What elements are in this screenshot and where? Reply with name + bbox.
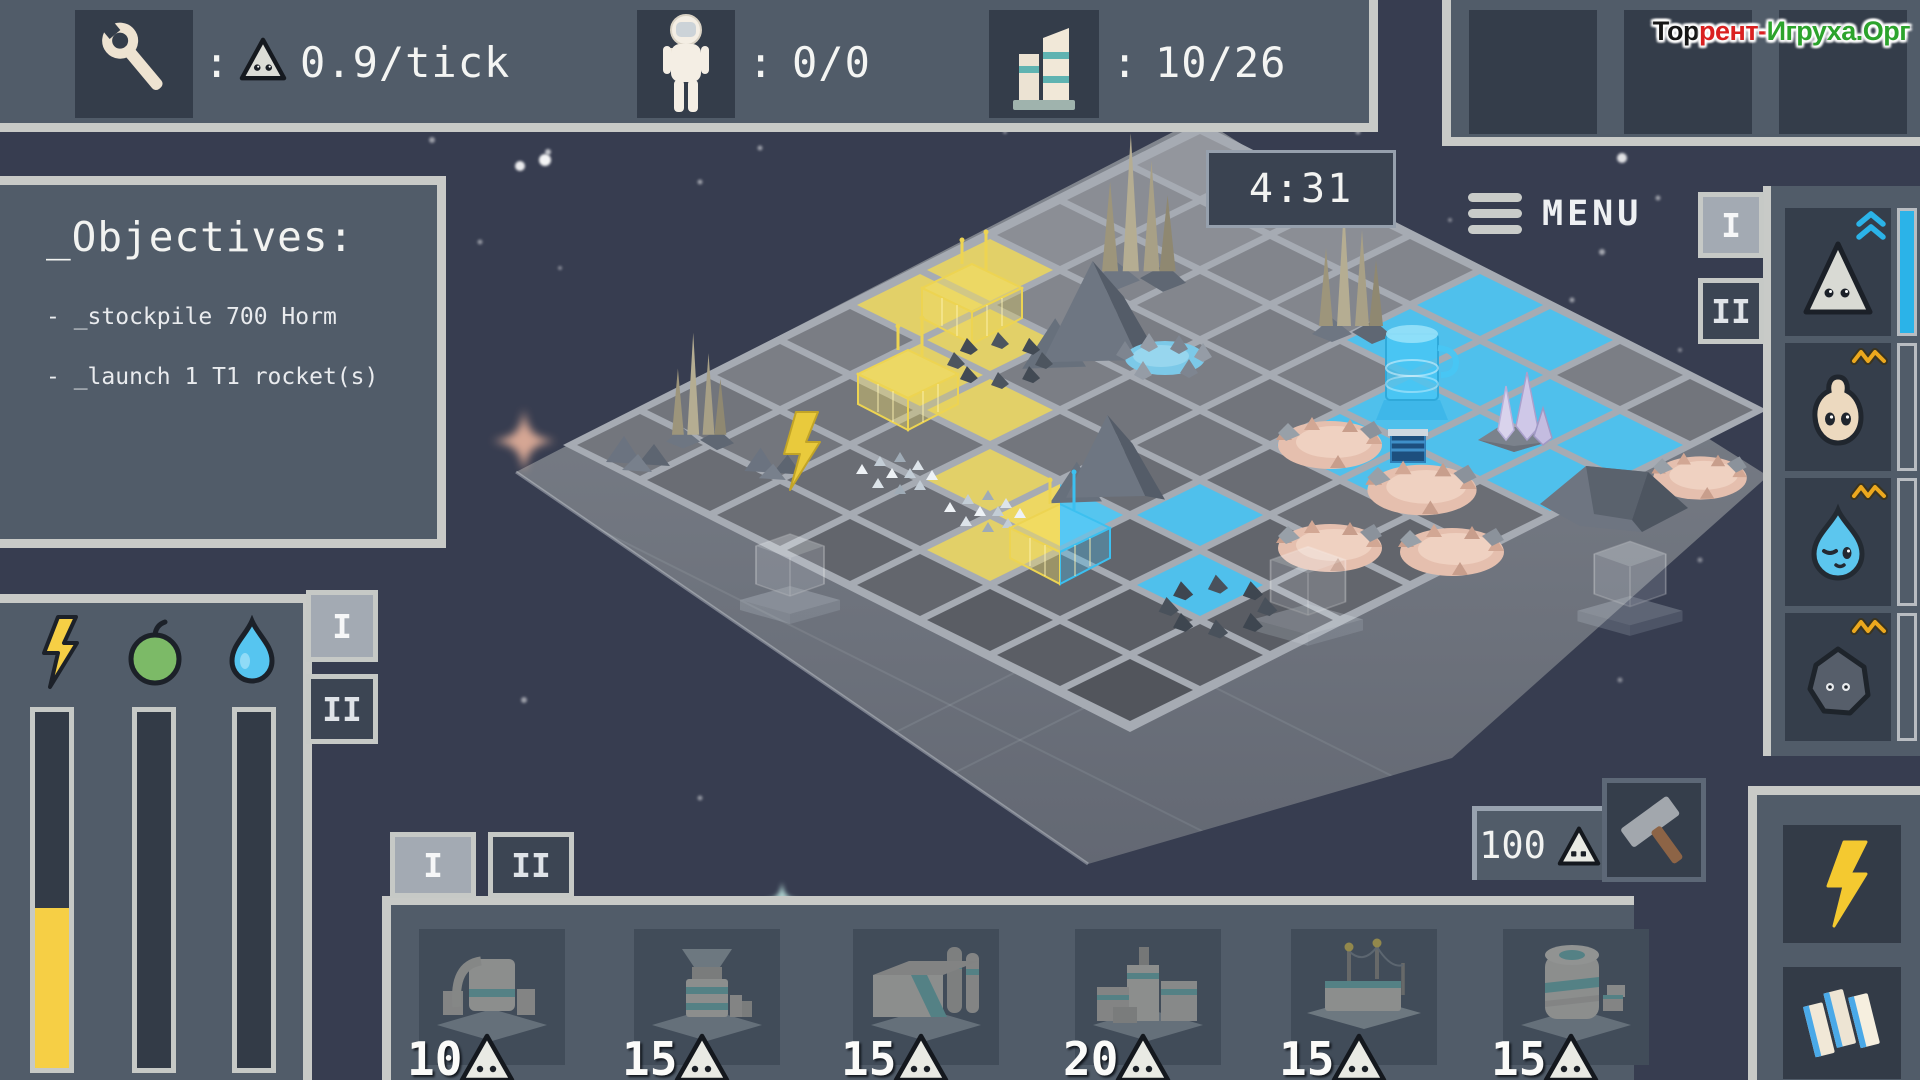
resource-bar <box>1897 478 1917 606</box>
inventory-slot-1[interactable] <box>1469 10 1597 134</box>
factory-icon <box>1011 16 1077 112</box>
triangle-creature-icon <box>1800 236 1876 320</box>
resource-bar <box>1897 343 1917 471</box>
build-menu-panel: 10 15 <box>382 896 1634 1080</box>
double-chevron-up-icon <box>1854 211 1888 241</box>
apple-icon <box>122 619 188 687</box>
triangle-creature-icon <box>1556 825 1602 867</box>
resource-entry-blob[interactable] <box>1785 343 1891 471</box>
books-icon <box>1800 984 1884 1062</box>
resource-entry-droplet[interactable] <box>1785 478 1891 606</box>
orange-zigzag-icon <box>1850 481 1888 503</box>
objective-item: - _launch 1 T1 rocket(s) <box>46 347 423 407</box>
buildings-colon: : <box>1112 38 1138 87</box>
menu-button[interactable]: MENU <box>1468 186 1642 241</box>
triangle-creature-icon <box>1542 1031 1600 1080</box>
triangle-creature-icon <box>1114 1031 1172 1080</box>
colonists-value: 0/0 <box>792 38 871 87</box>
wrench-slot <box>75 10 193 118</box>
colony-meters-panel <box>0 594 312 1080</box>
power-overlay-button[interactable] <box>1783 825 1901 943</box>
food-meter <box>132 707 176 1073</box>
timer: 4:31 <box>1206 150 1396 228</box>
selection-cost-value: 100 <box>1479 824 1546 867</box>
resource-entry-rock[interactable] <box>1785 613 1891 741</box>
build-rate-value: 0.9/tick <box>300 38 510 87</box>
menu-label: MENU <box>1542 194 1642 234</box>
wrench-icon <box>97 16 169 110</box>
resource-entry-horm[interactable] <box>1785 208 1891 336</box>
astronaut-icon <box>657 12 715 116</box>
droplet-icon <box>226 615 278 687</box>
top-stats-panel: : 0.9/tick : 0/0 <box>0 0 1378 132</box>
rock-creature-icon <box>1800 637 1876 721</box>
objectives-panel: _Objectives: - _stockpile 700 Horm - _la… <box>0 176 446 548</box>
build-cost: 20 <box>1063 1031 1172 1080</box>
blob-creature-icon <box>1800 367 1876 451</box>
demolish-button[interactable] <box>1602 778 1706 882</box>
hamburger-icon <box>1468 186 1522 241</box>
resource-list-panel <box>1763 186 1920 756</box>
triangle-creature-icon <box>458 1031 516 1080</box>
inventory-slots-panel: Торрент-Игруха.Орг <box>1442 0 1920 146</box>
triangle-creature-icon <box>238 36 288 82</box>
resource-panel-tab-1[interactable]: I <box>1698 192 1764 258</box>
hammer-icon <box>1615 791 1693 869</box>
objectives-title: _Objectives: <box>46 213 423 261</box>
build-card-complex[interactable]: 20 <box>1075 929 1221 1065</box>
buildings-slot <box>989 10 1099 118</box>
resource-bar <box>1897 208 1917 336</box>
buildings-value: 10/26 <box>1155 38 1286 87</box>
site-watermark: Торрент-Игруха.Орг <box>1653 16 1910 47</box>
colonists-colon: : <box>748 38 774 87</box>
wrench-colon: : <box>204 38 230 87</box>
triangle-creature-icon <box>892 1031 950 1080</box>
selection-cost-box: 100 <box>1472 806 1604 880</box>
bolt-icon <box>1810 838 1874 930</box>
build-card-factory[interactable]: 15 <box>853 929 999 1065</box>
build-tab-2[interactable]: II <box>488 832 574 898</box>
meters-tab-2[interactable]: II <box>306 674 378 744</box>
build-cost: 15 <box>622 1031 731 1080</box>
research-button[interactable] <box>1783 967 1901 1079</box>
power-meter <box>30 707 74 1073</box>
orange-zigzag-icon <box>1850 346 1888 368</box>
astronaut-slot <box>637 10 735 118</box>
build-cost: 15 <box>841 1031 950 1080</box>
build-card-outpost[interactable]: 15 <box>1291 929 1437 1065</box>
resource-bar <box>1897 613 1917 741</box>
triangle-creature-icon <box>673 1031 731 1080</box>
quick-actions-panel <box>1748 786 1920 1080</box>
triangle-creature-icon <box>1330 1031 1388 1080</box>
build-cost: 15 <box>1491 1031 1600 1080</box>
resource-panel-tab-2[interactable]: II <box>1698 278 1764 344</box>
build-card-reactor[interactable]: 10 <box>419 929 565 1065</box>
droplet-creature-icon <box>1800 502 1876 586</box>
objective-item: - _stockpile 700 Horm <box>46 287 423 347</box>
meters-tab-1[interactable]: I <box>306 590 378 662</box>
build-cost: 15 <box>1279 1031 1388 1080</box>
game-screen: : 0.9/tick : 0/0 <box>0 0 1920 1080</box>
build-cost: 10 <box>407 1031 516 1080</box>
water-meter <box>232 707 276 1073</box>
orange-zigzag-icon <box>1850 616 1888 638</box>
build-tab-1[interactable]: I <box>390 832 476 898</box>
build-card-silo[interactable]: 15 <box>1503 929 1649 1065</box>
build-card-drill[interactable]: 15 <box>634 929 780 1065</box>
bolt-icon <box>28 613 86 691</box>
